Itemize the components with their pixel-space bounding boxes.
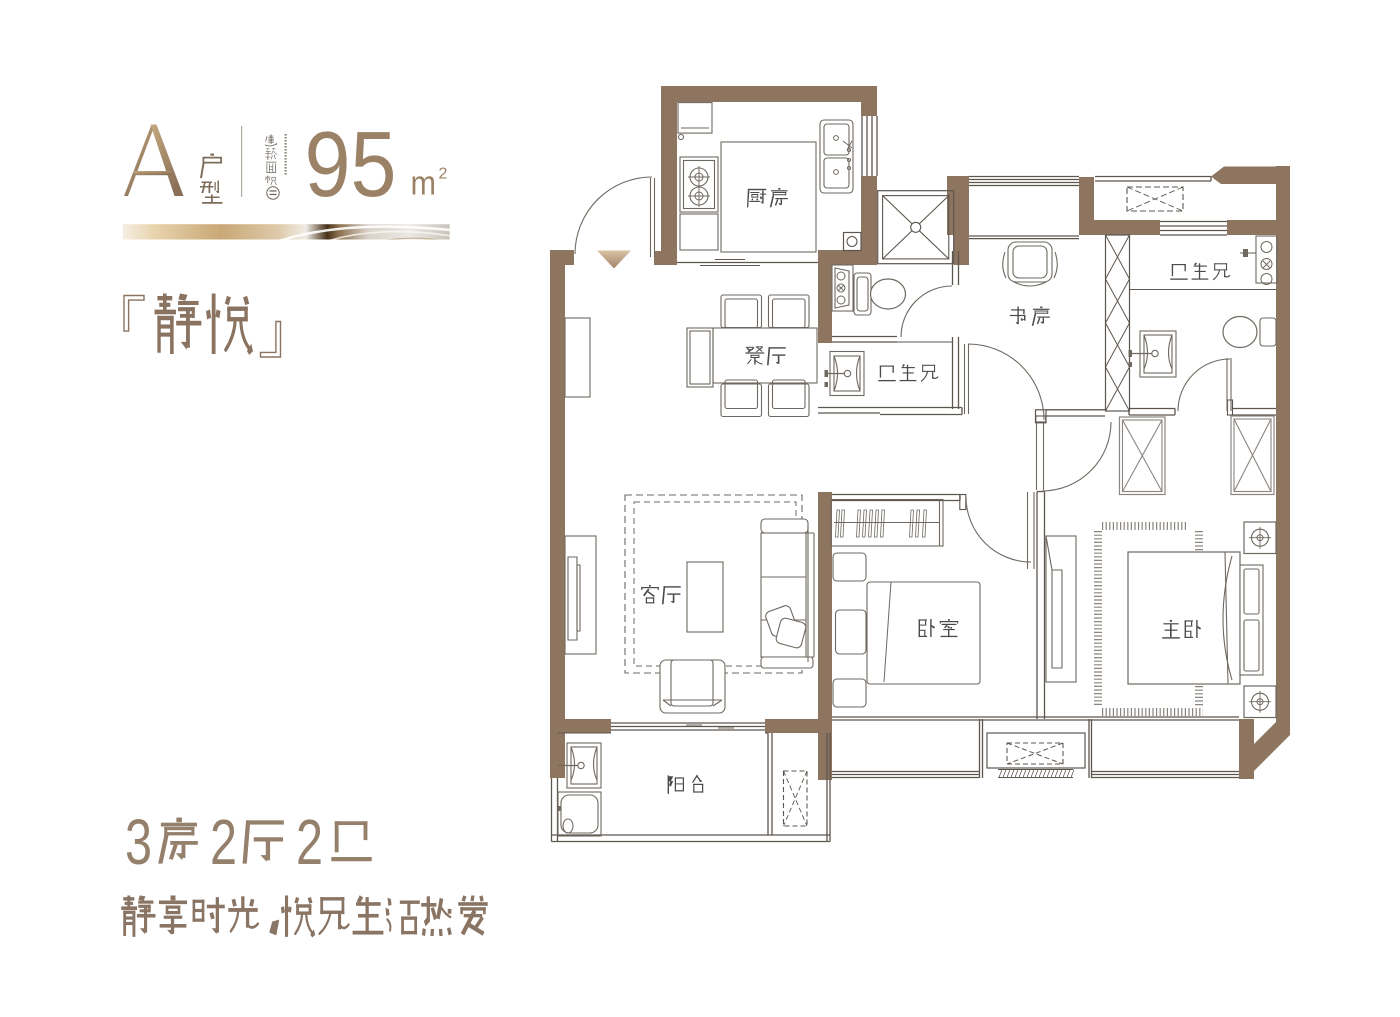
svg-text:2: 2 xyxy=(439,166,448,183)
svg-text:m: m xyxy=(411,165,437,203)
svg-text:2: 2 xyxy=(210,806,237,878)
svg-text:95: 95 xyxy=(305,112,397,216)
svg-text:2: 2 xyxy=(296,806,323,878)
svg-text:3: 3 xyxy=(125,806,152,878)
